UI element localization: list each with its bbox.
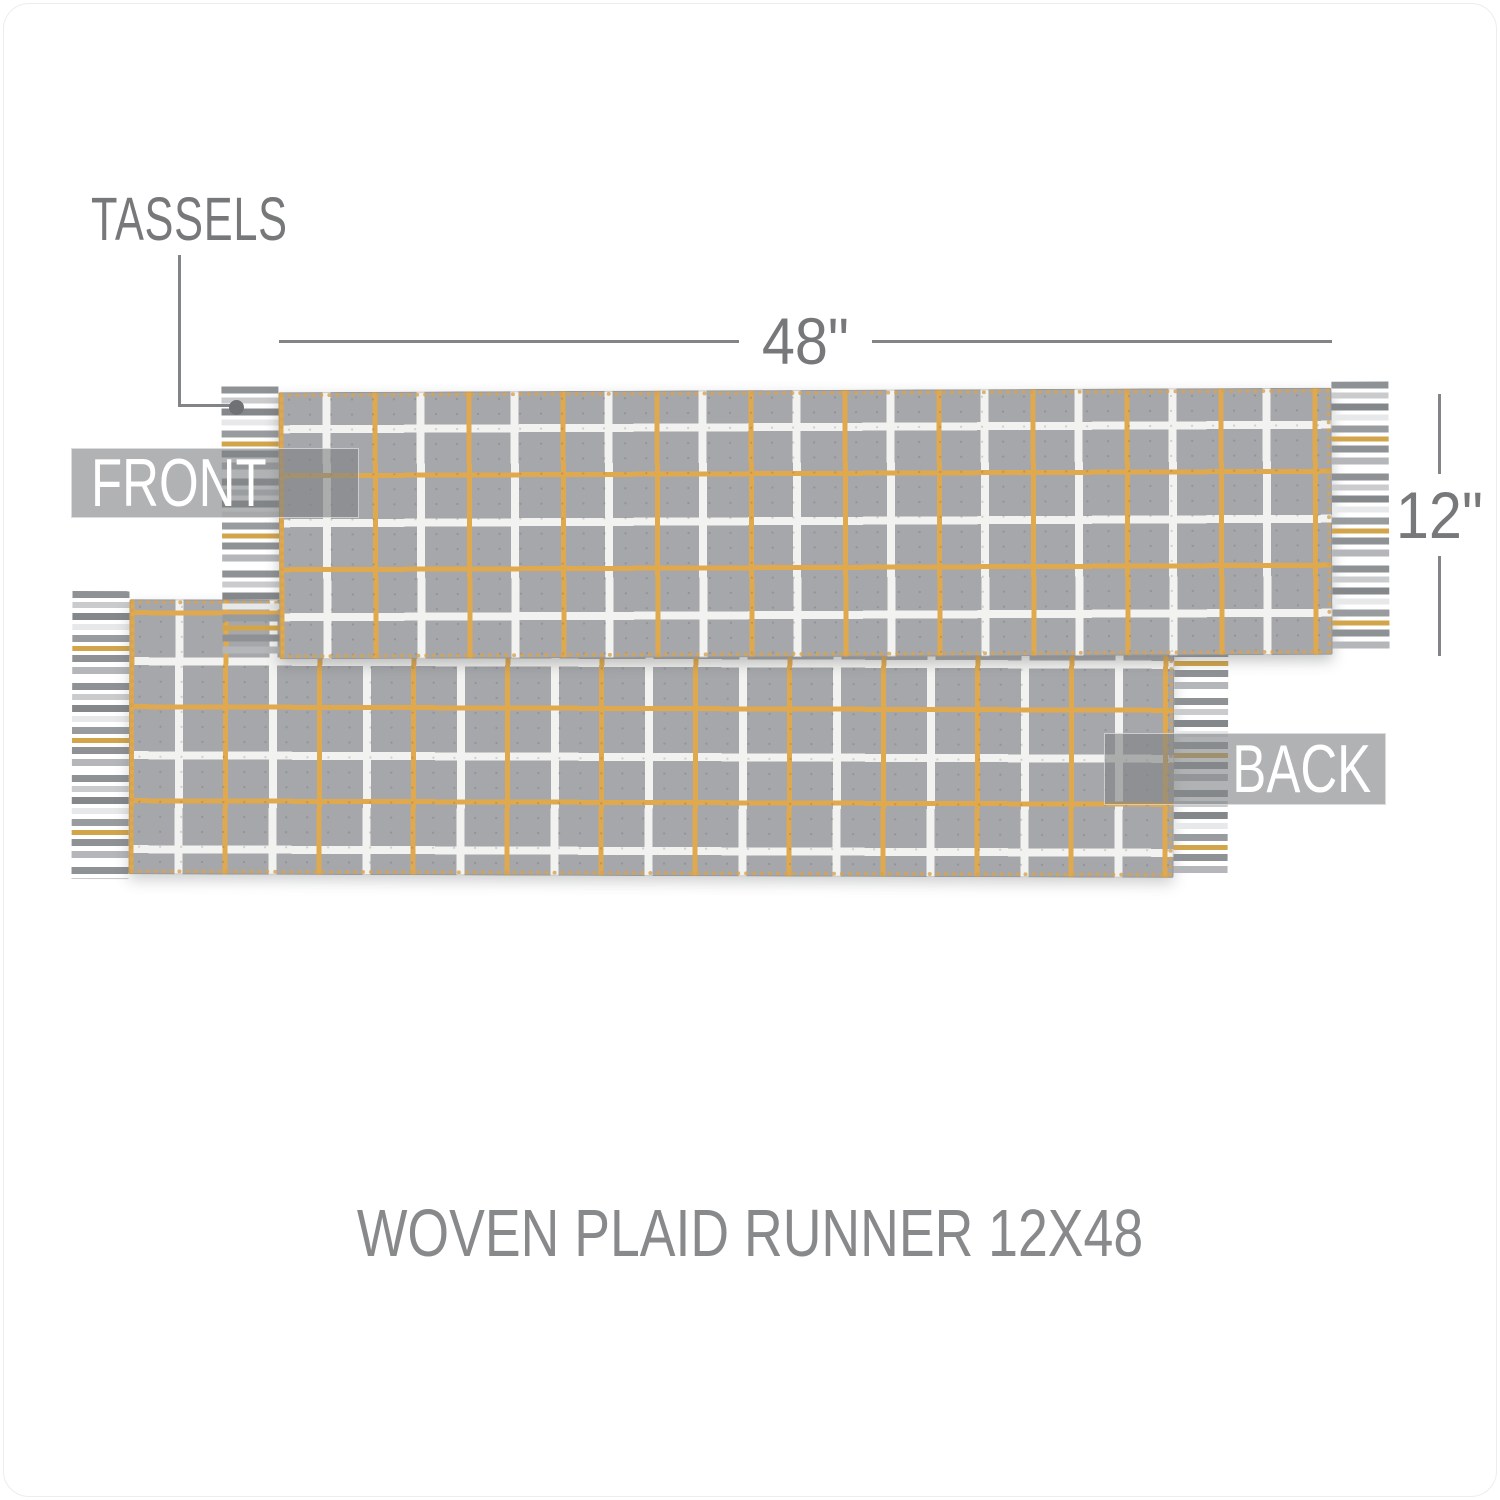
height-dimension-line-top bbox=[1438, 394, 1441, 474]
height-dimension-line-bottom bbox=[1438, 556, 1441, 656]
height-dimension: 12" bbox=[1398, 394, 1480, 656]
runner-front-view bbox=[221, 379, 1389, 660]
tassels-pointer-horizontal-line bbox=[178, 404, 231, 407]
width-dimension: 48" bbox=[279, 307, 1332, 375]
front-view-tag-text: FRONT bbox=[91, 449, 267, 517]
tassels-callout-label: TASSELS bbox=[91, 189, 288, 250]
tassels-pointer-vertical-line bbox=[178, 255, 181, 407]
tassels-pointer-dot-icon bbox=[229, 400, 244, 415]
product-caption-title: WOVEN PLAID RUNNER 12X48 bbox=[153, 1200, 1347, 1267]
width-dimension-value: 48" bbox=[746, 308, 866, 374]
product-diagram-canvas: TASSELS 48" 12" FRONT BACK WOVEN PLAID R… bbox=[3, 3, 1497, 1497]
front-right-tassels-fringe bbox=[1331, 381, 1389, 655]
height-dimension-value: 12" bbox=[1395, 474, 1482, 556]
width-dimension-line-left bbox=[279, 340, 739, 343]
front-left-tassels-fringe bbox=[221, 386, 279, 660]
back-left-tassels-fringe bbox=[72, 591, 130, 879]
back-view-tag-text: BACK bbox=[1232, 735, 1371, 803]
back-view-tag: BACK bbox=[1104, 733, 1386, 805]
front-fabric-plaid bbox=[278, 388, 1332, 660]
front-view-tag: FRONT bbox=[71, 448, 359, 518]
width-dimension-line-right bbox=[872, 340, 1332, 343]
